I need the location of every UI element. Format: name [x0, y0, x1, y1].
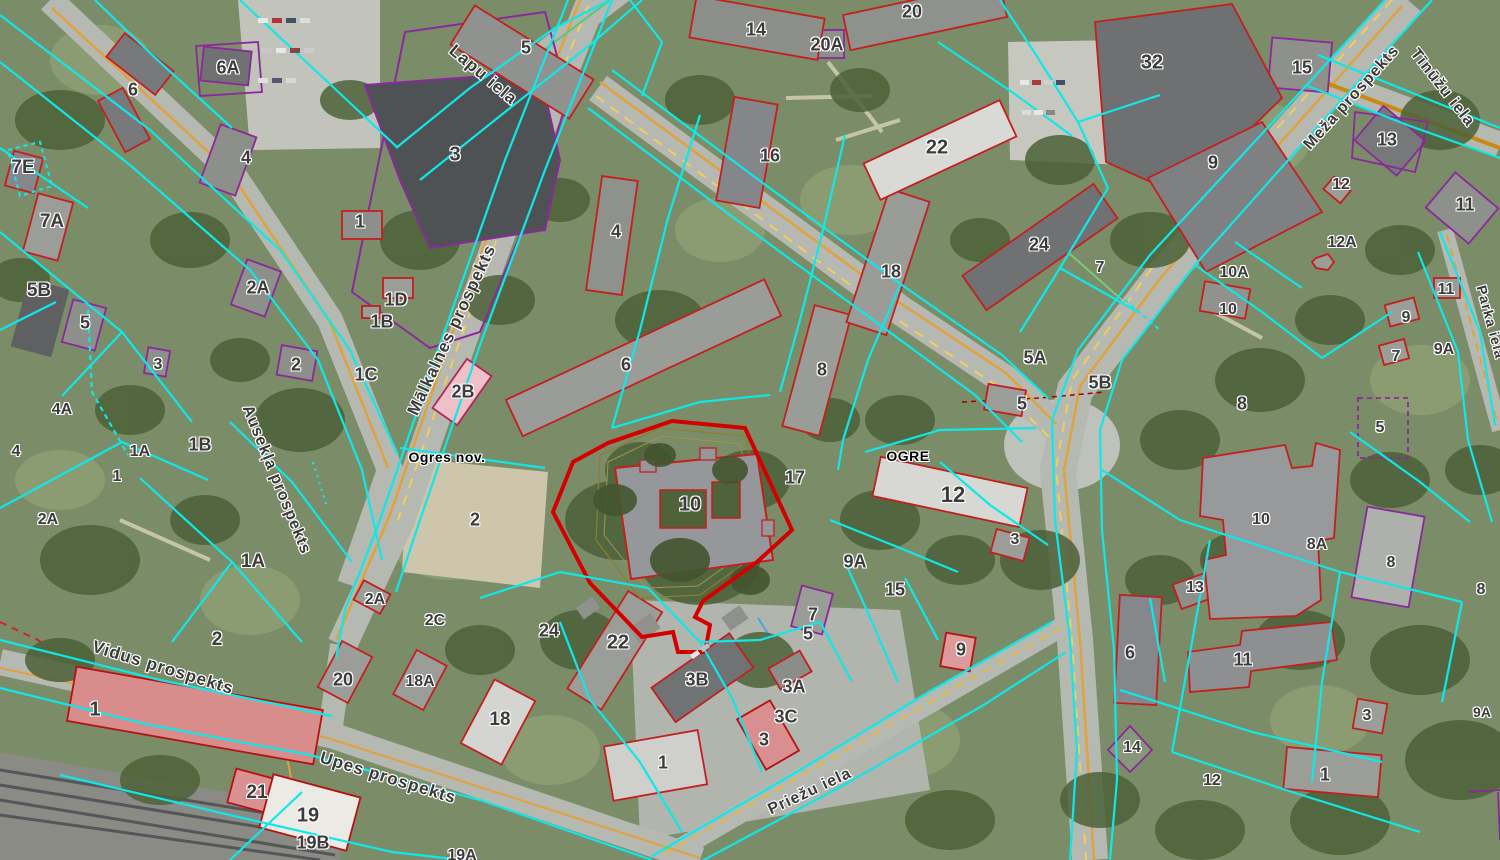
map-canvas[interactable]: Ogres nov.OGRELapu ielaMālkalnes prospek…	[0, 0, 1500, 860]
aerial-basemap	[0, 0, 1500, 860]
